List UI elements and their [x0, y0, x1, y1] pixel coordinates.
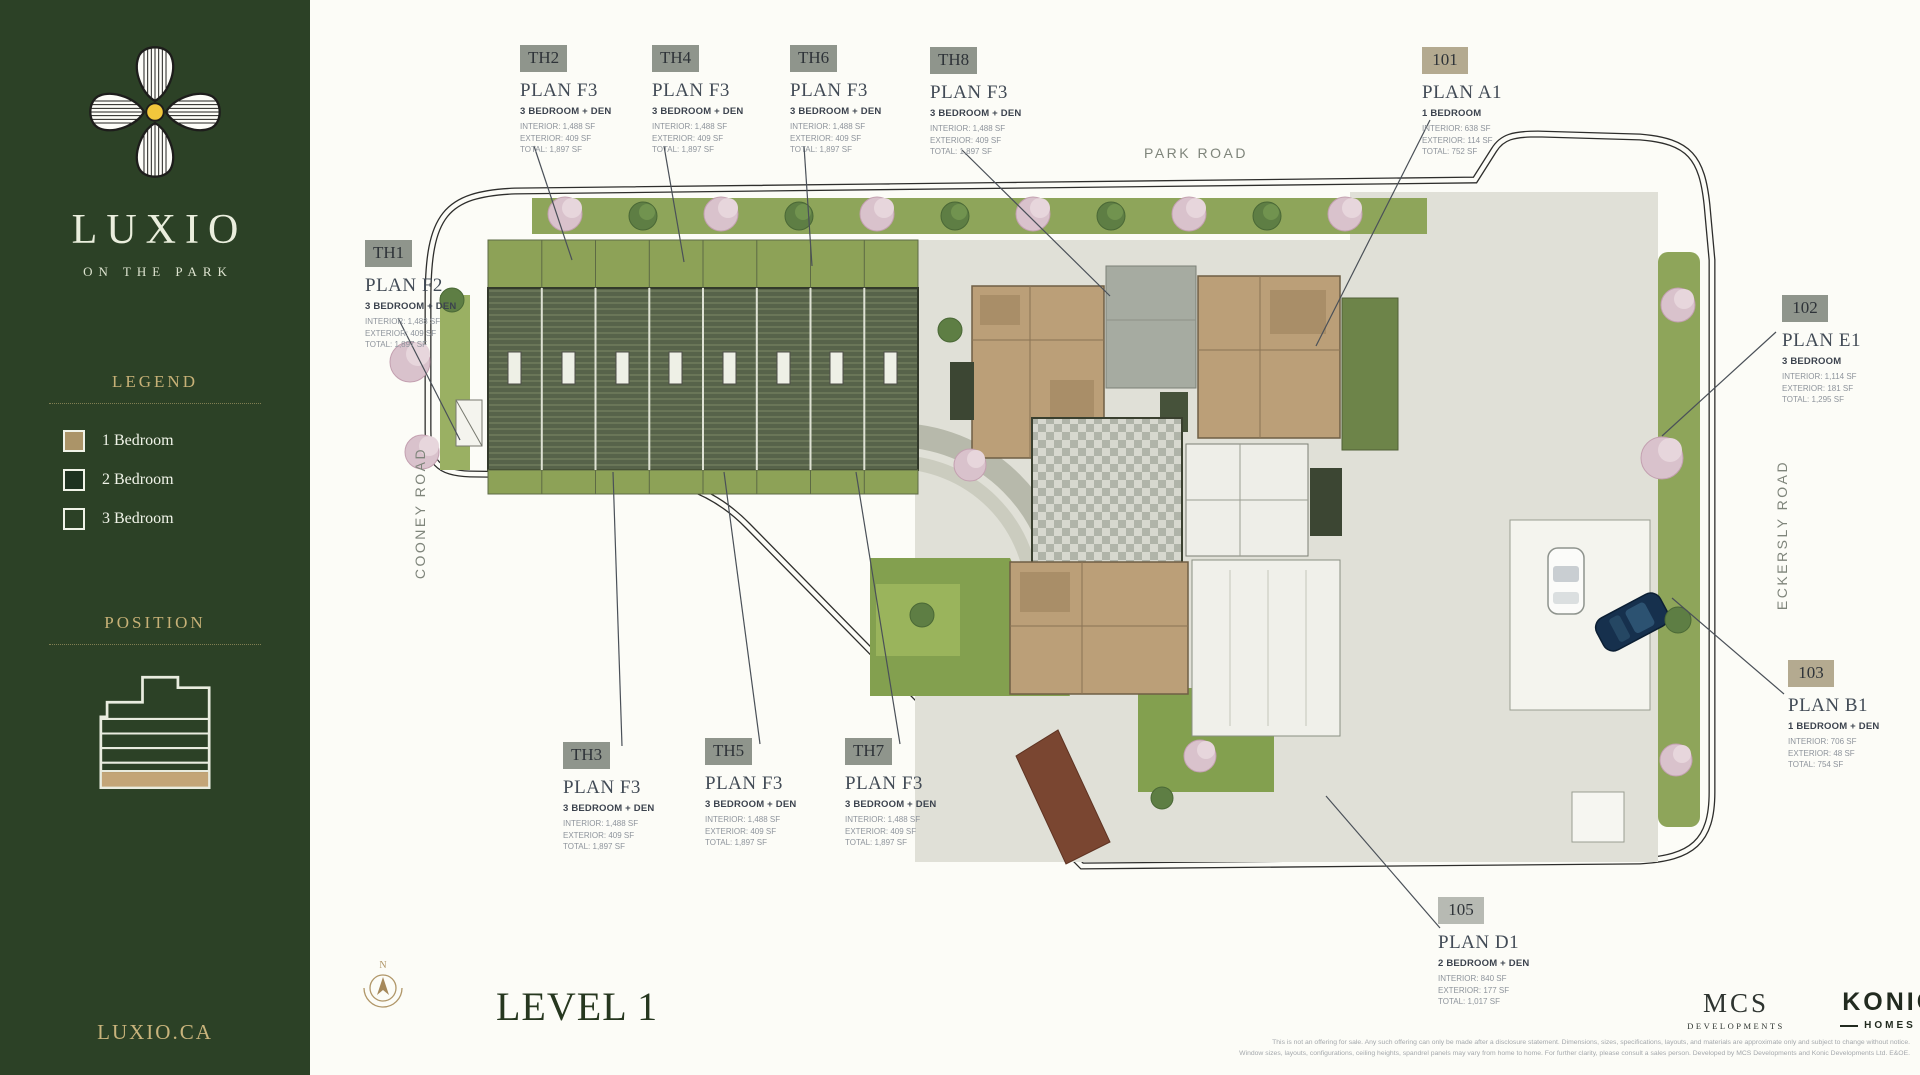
position-section: POSITION [49, 613, 261, 796]
unit-interior-sf: INTERIOR: 1,488 SF [520, 121, 644, 133]
unit-total-sf: TOTAL: 752 SF [1422, 146, 1546, 158]
legal-disclaimer: This is not an offering for sale. Any su… [910, 1038, 1910, 1059]
brand-tagline: ON THE PARK [77, 264, 233, 280]
konic-homes-logo: KONIC HOMES [1830, 988, 1920, 1031]
unit-interior-sf: INTERIOR: 1,488 SF [652, 121, 776, 133]
legend-item-3-bedroom: 3 Bedroom [63, 508, 261, 530]
unit-badge-101[interactable]: 101 [1422, 47, 1468, 74]
unit-total-sf: TOTAL: 1,897 SF [520, 144, 644, 156]
legend-section: LEGEND 1 Bedroom 2 Bedroom 3 Bedroom [49, 372, 261, 547]
unit-interior-sf: INTERIOR: 1,488 SF [365, 316, 489, 328]
unit-plan-name: PLAN F3 [563, 777, 687, 799]
unit-type: 3 BEDROOM + DEN [365, 301, 489, 312]
road-label-cooney-road: COONEY ROAD [412, 433, 428, 593]
unit-interior-sf: INTERIOR: 1,488 SF [930, 123, 1054, 135]
unit-exterior-sf: EXTERIOR: 409 SF [705, 826, 829, 838]
unit-interior-sf: INTERIOR: 1,488 SF [563, 818, 687, 830]
unit-type: 3 BEDROOM + DEN [652, 106, 776, 117]
road-label-park-road: PARK ROAD [1116, 145, 1276, 161]
disclaimer-line-1: This is not an offering for sale. Any su… [910, 1038, 1910, 1049]
unit-exterior-sf: EXTERIOR: 177 SF [1438, 985, 1562, 997]
unit-exterior-sf: EXTERIOR: 409 SF [563, 830, 687, 842]
unit-badge-th5[interactable]: TH5 [705, 738, 752, 765]
unit-plan-name: PLAN F2 [365, 275, 489, 297]
unit-badge-th7[interactable]: TH7 [845, 738, 892, 765]
unit-plan-name: PLAN F3 [845, 773, 969, 795]
unit-plan-name: PLAN F3 [705, 773, 829, 795]
unit-plan-name: PLAN F3 [520, 80, 644, 102]
unit-interior-sf: INTERIOR: 1,488 SF [845, 814, 969, 826]
unit-interior-sf: INTERIOR: 840 SF [1438, 973, 1562, 985]
unit-badge-th8[interactable]: TH8 [930, 47, 977, 74]
website-link[interactable]: LUXIO.CA [97, 1020, 213, 1045]
legend-item-1-bedroom: 1 Bedroom [63, 430, 261, 452]
building-position-icon [80, 671, 230, 796]
unit-interior-sf: INTERIOR: 1,114 SF [1782, 371, 1906, 383]
unit-plan-name: PLAN F3 [790, 80, 914, 102]
unit-badge-th1[interactable]: TH1 [365, 240, 412, 267]
townhouse-block [456, 240, 918, 494]
compass-n-label: N [379, 960, 386, 971]
mcs-developments-logo: MCS DEVELOPMENTS [1670, 988, 1802, 1031]
unit-exterior-sf: EXTERIOR: 409 SF [365, 328, 489, 340]
unit-exterior-sf: EXTERIOR: 409 SF [930, 135, 1054, 147]
konic-dash-left [1840, 1025, 1858, 1027]
unit-callout-th8: TH8 PLAN F3 3 BEDROOM + DEN INTERIOR: 1,… [930, 47, 1054, 158]
legend-swatch-3-bedroom [63, 508, 85, 530]
unit-callout-th1: TH1 PLAN F2 3 BEDROOM + DEN INTERIOR: 1,… [365, 240, 489, 351]
unit-total-sf: TOTAL: 1,295 SF [1782, 394, 1906, 406]
highlighted-level-1-floor [102, 772, 208, 787]
unit-total-sf: TOTAL: 754 SF [1788, 759, 1912, 771]
unit-plan-name: PLAN A1 [1422, 82, 1546, 104]
unit-type: 3 BEDROOM + DEN [930, 108, 1054, 119]
unit-callout-th7: TH7 PLAN F3 3 BEDROOM + DEN INTERIOR: 1,… [845, 738, 969, 849]
unit-type: 1 BEDROOM + DEN [1788, 721, 1912, 732]
legend-swatch-1-bedroom [63, 430, 85, 452]
legend-swatch-2-bedroom [63, 469, 85, 491]
unit-total-sf: TOTAL: 1,897 SF [563, 841, 687, 853]
unit-exterior-sf: EXTERIOR: 48 SF [1788, 748, 1912, 760]
unit-plan-name: PLAN E1 [1782, 330, 1906, 352]
unit-callout-th4: TH4 PLAN F3 3 BEDROOM + DEN INTERIOR: 1,… [652, 45, 776, 156]
brand-wordmark: LUXIO [63, 206, 248, 254]
position-heading: POSITION [49, 613, 261, 645]
unit-callout-th3: TH3 PLAN F3 3 BEDROOM + DEN INTERIOR: 1,… [563, 742, 687, 853]
legend-heading: LEGEND [49, 372, 261, 404]
unit-type: 3 BEDROOM + DEN [520, 106, 644, 117]
unit-badge-th6[interactable]: TH6 [790, 45, 837, 72]
unit-type: 3 BEDROOM + DEN [790, 106, 914, 117]
sidebar: LUXIO ON THE PARK LEGEND 1 Bedroom 2 Bed… [0, 0, 310, 1075]
level-title: LEVEL 1 [496, 983, 658, 1030]
dogwood-flower-logo-icon [77, 34, 233, 190]
legend-item-2-bedroom: 2 Bedroom [63, 469, 261, 491]
unit-callout-101: 101 PLAN A1 1 BEDROOM INTERIOR: 638 SF E… [1422, 47, 1546, 158]
unit-badge-103[interactable]: 103 [1788, 660, 1834, 687]
unit-interior-sf: INTERIOR: 1,488 SF [705, 814, 829, 826]
unit-total-sf: TOTAL: 1,897 SF [365, 339, 489, 351]
unit-exterior-sf: EXTERIOR: 409 SF [845, 826, 969, 838]
unit-badge-th2[interactable]: TH2 [520, 45, 567, 72]
unit-callout-102: 102 PLAN E1 3 BEDROOM INTERIOR: 1,114 SF… [1782, 295, 1906, 406]
unit-total-sf: TOTAL: 1,897 SF [845, 837, 969, 849]
unit-interior-sf: INTERIOR: 1,488 SF [790, 121, 914, 133]
unit-total-sf: TOTAL: 1,897 SF [705, 837, 829, 849]
unit-plan-name: PLAN B1 [1788, 695, 1912, 717]
disclaimer-line-2: Window sizes, layouts, configurations, c… [910, 1049, 1910, 1060]
compass-north-icon: N [356, 956, 410, 1018]
unit-type: 1 BEDROOM [1422, 108, 1546, 119]
unit-exterior-sf: EXTERIOR: 114 SF [1422, 135, 1546, 147]
unit-total-sf: TOTAL: 1,897 SF [930, 146, 1054, 158]
unit-type: 3 BEDROOM + DEN [705, 799, 829, 810]
unit-total-sf: TOTAL: 1,897 SF [652, 144, 776, 156]
white-car [1548, 548, 1584, 614]
unit-callout-103: 103 PLAN B1 1 BEDROOM + DEN INTERIOR: 70… [1788, 660, 1912, 771]
unit-plan-name: PLAN F3 [930, 82, 1054, 104]
unit-exterior-sf: EXTERIOR: 409 SF [652, 133, 776, 145]
site-plan-illustration [310, 0, 1920, 1075]
unit-badge-th4[interactable]: TH4 [652, 45, 699, 72]
unit-interior-sf: INTERIOR: 638 SF [1422, 123, 1546, 135]
unit-badge-th3[interactable]: TH3 [563, 742, 610, 769]
unit-type: 2 BEDROOM + DEN [1438, 958, 1562, 969]
site-plan-page: PARK ROAD COONEY ROAD ECKERSLY ROAD TH1 … [310, 0, 1920, 1075]
unit-total-sf: TOTAL: 1,017 SF [1438, 996, 1562, 1008]
unit-type: 3 BEDROOM [1782, 356, 1906, 367]
unit-total-sf: TOTAL: 1,897 SF [790, 144, 914, 156]
unit-callout-105: 105 PLAN D1 2 BEDROOM + DEN INTERIOR: 84… [1438, 897, 1562, 1008]
developer-logos: MCS DEVELOPMENTS KONIC HOMES [1670, 988, 1920, 1031]
unit-type: 3 BEDROOM + DEN [563, 803, 687, 814]
unit-type: 3 BEDROOM + DEN [845, 799, 969, 810]
unit-badge-102[interactable]: 102 [1782, 295, 1828, 322]
unit-exterior-sf: EXTERIOR: 181 SF [1782, 383, 1906, 395]
unit-plan-name: PLAN F3 [652, 80, 776, 102]
unit-badge-105[interactable]: 105 [1438, 897, 1484, 924]
unit-exterior-sf: EXTERIOR: 409 SF [790, 133, 914, 145]
unit-exterior-sf: EXTERIOR: 409 SF [520, 133, 644, 145]
unit-callout-th6: TH6 PLAN F3 3 BEDROOM + DEN INTERIOR: 1,… [790, 45, 914, 156]
unit-callout-th2: TH2 PLAN F3 3 BEDROOM + DEN INTERIOR: 1,… [520, 45, 644, 156]
unit-plan-name: PLAN D1 [1438, 932, 1562, 954]
unit-interior-sf: INTERIOR: 706 SF [1788, 736, 1912, 748]
unit-callout-th5: TH5 PLAN F3 3 BEDROOM + DEN INTERIOR: 1,… [705, 738, 829, 849]
road-label-eckersly-road: ECKERSLY ROAD [1774, 455, 1790, 615]
